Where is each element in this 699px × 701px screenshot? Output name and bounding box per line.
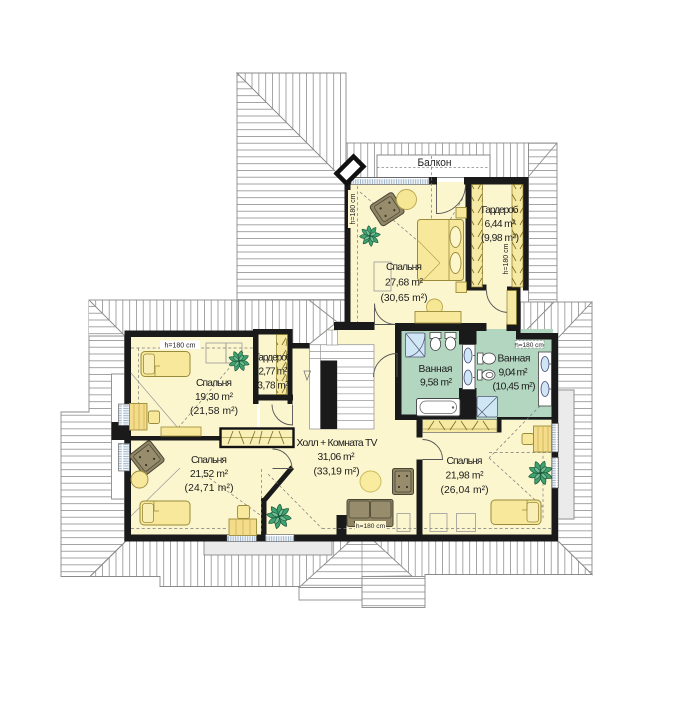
svg-text:Спальня: Спальня xyxy=(447,456,483,467)
svg-text:Спальня: Спальня xyxy=(196,378,232,389)
svg-text:Гардероб: Гардероб xyxy=(482,204,519,216)
svg-text:Ванная: Ванная xyxy=(498,354,531,365)
svg-text:21,98 m²: 21,98 m² xyxy=(446,471,485,482)
svg-text:h=180 cm: h=180 cm xyxy=(515,342,544,349)
svg-text:h=180 cm: h=180 cm xyxy=(350,193,357,224)
svg-text:(33,19 m²): (33,19 m²) xyxy=(314,467,360,478)
svg-text:Балкон: Балкон xyxy=(418,157,452,169)
svg-text:21,52 m²: 21,52 m² xyxy=(190,469,229,480)
svg-text:h=180 cm: h=180 cm xyxy=(503,243,510,274)
svg-text:Спальня: Спальня xyxy=(191,455,227,466)
svg-text:6,44 m²: 6,44 m² xyxy=(485,219,517,230)
svg-text:(3,78 m²): (3,78 m²) xyxy=(255,381,292,392)
svg-text:(30,65 m²): (30,65 m²) xyxy=(381,293,428,304)
svg-text:9,04 m²: 9,04 m² xyxy=(499,368,529,379)
svg-text:9,58 m²: 9,58 m² xyxy=(420,378,453,389)
svg-text:h=180 cm: h=180 cm xyxy=(165,343,196,350)
svg-text:(10,45 m²): (10,45 m²) xyxy=(493,382,536,393)
svg-text:Гардероб: Гардероб xyxy=(255,352,292,364)
svg-text:Спальня: Спальня xyxy=(386,262,422,273)
svg-text:27,68 m²: 27,68 m² xyxy=(385,278,424,289)
svg-text:19,30 m²: 19,30 m² xyxy=(195,392,234,403)
svg-text:Ванная: Ванная xyxy=(419,364,453,375)
svg-text:31,06 m²: 31,06 m² xyxy=(318,452,356,463)
svg-text:(9,98 m²): (9,98 m²) xyxy=(481,233,519,244)
svg-text:Холл + Комната TV: Холл + Комната TV xyxy=(297,438,378,449)
svg-text:(21,58 m²): (21,58 m²) xyxy=(190,406,238,417)
svg-text:(24,71 m²): (24,71 m²) xyxy=(185,483,234,494)
svg-text:2,77 m²: 2,77 m² xyxy=(259,367,289,378)
svg-text:h=180 cm: h=180 cm xyxy=(356,523,386,530)
svg-text:(26,04 m²): (26,04 m²) xyxy=(441,485,489,496)
